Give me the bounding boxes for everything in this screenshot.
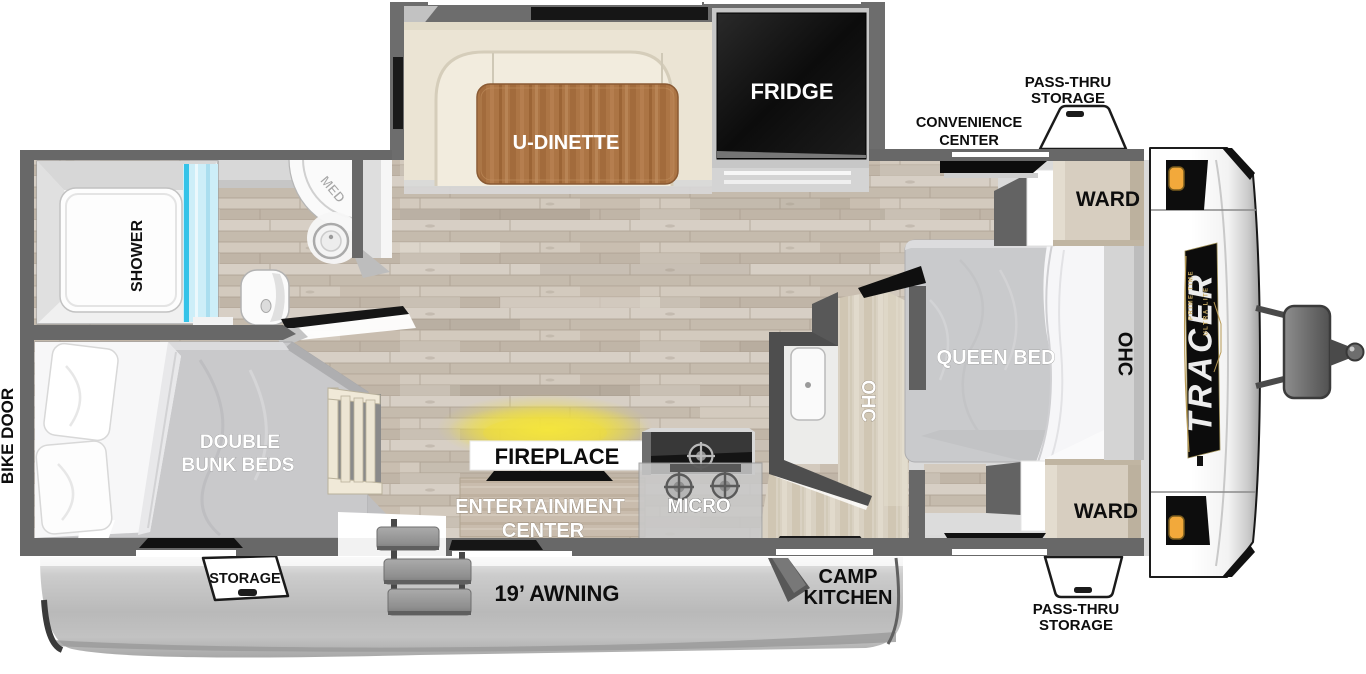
svg-text:STORAGE: STORAGE — [209, 571, 281, 587]
svg-text:MICRO: MICRO — [667, 496, 730, 517]
svg-text:DOUBLE: DOUBLE — [200, 432, 280, 453]
svg-text:STORAGE: STORAGE — [1031, 90, 1105, 107]
svg-text:FRIDGE: FRIDGE — [750, 79, 833, 104]
svg-text:OHC: OHC — [1114, 332, 1136, 376]
svg-text:WARD: WARD — [1076, 188, 1140, 211]
svg-text:PASS-THRU: PASS-THRU — [1033, 601, 1119, 618]
svg-text:ULTRA LITE: ULTRA LITE — [1204, 286, 1210, 335]
svg-text:TRACER: TRACER — [1182, 271, 1219, 433]
svg-text:SHOWER: SHOWER — [129, 220, 146, 292]
svg-text:FIREPLACE: FIREPLACE — [495, 444, 620, 469]
svg-text:KITCHEN: KITCHEN — [804, 587, 893, 609]
svg-text:PRIME TIME: PRIME TIME — [1189, 270, 1195, 320]
svg-text:U-DINETTE: U-DINETTE — [513, 132, 620, 154]
svg-text:BIKE DOOR: BIKE DOOR — [0, 388, 17, 484]
svg-text:19’ AWNING: 19’ AWNING — [494, 581, 619, 606]
svg-text:CENTER: CENTER — [939, 133, 999, 149]
svg-text:CONVENIENCE: CONVENIENCE — [916, 115, 1023, 131]
svg-text:STORAGE: STORAGE — [1039, 617, 1113, 634]
svg-text:BUNK BEDS: BUNK BEDS — [182, 455, 295, 476]
svg-text:PASS-THRU: PASS-THRU — [1025, 74, 1111, 91]
svg-text:OHC: OHC — [857, 380, 878, 423]
svg-text:ENTERTAINMENT: ENTERTAINMENT — [455, 496, 625, 518]
svg-text:WARD: WARD — [1074, 500, 1138, 523]
svg-text:QUEEN BED: QUEEN BED — [937, 347, 1056, 369]
svg-text:CAMP: CAMP — [819, 566, 878, 588]
